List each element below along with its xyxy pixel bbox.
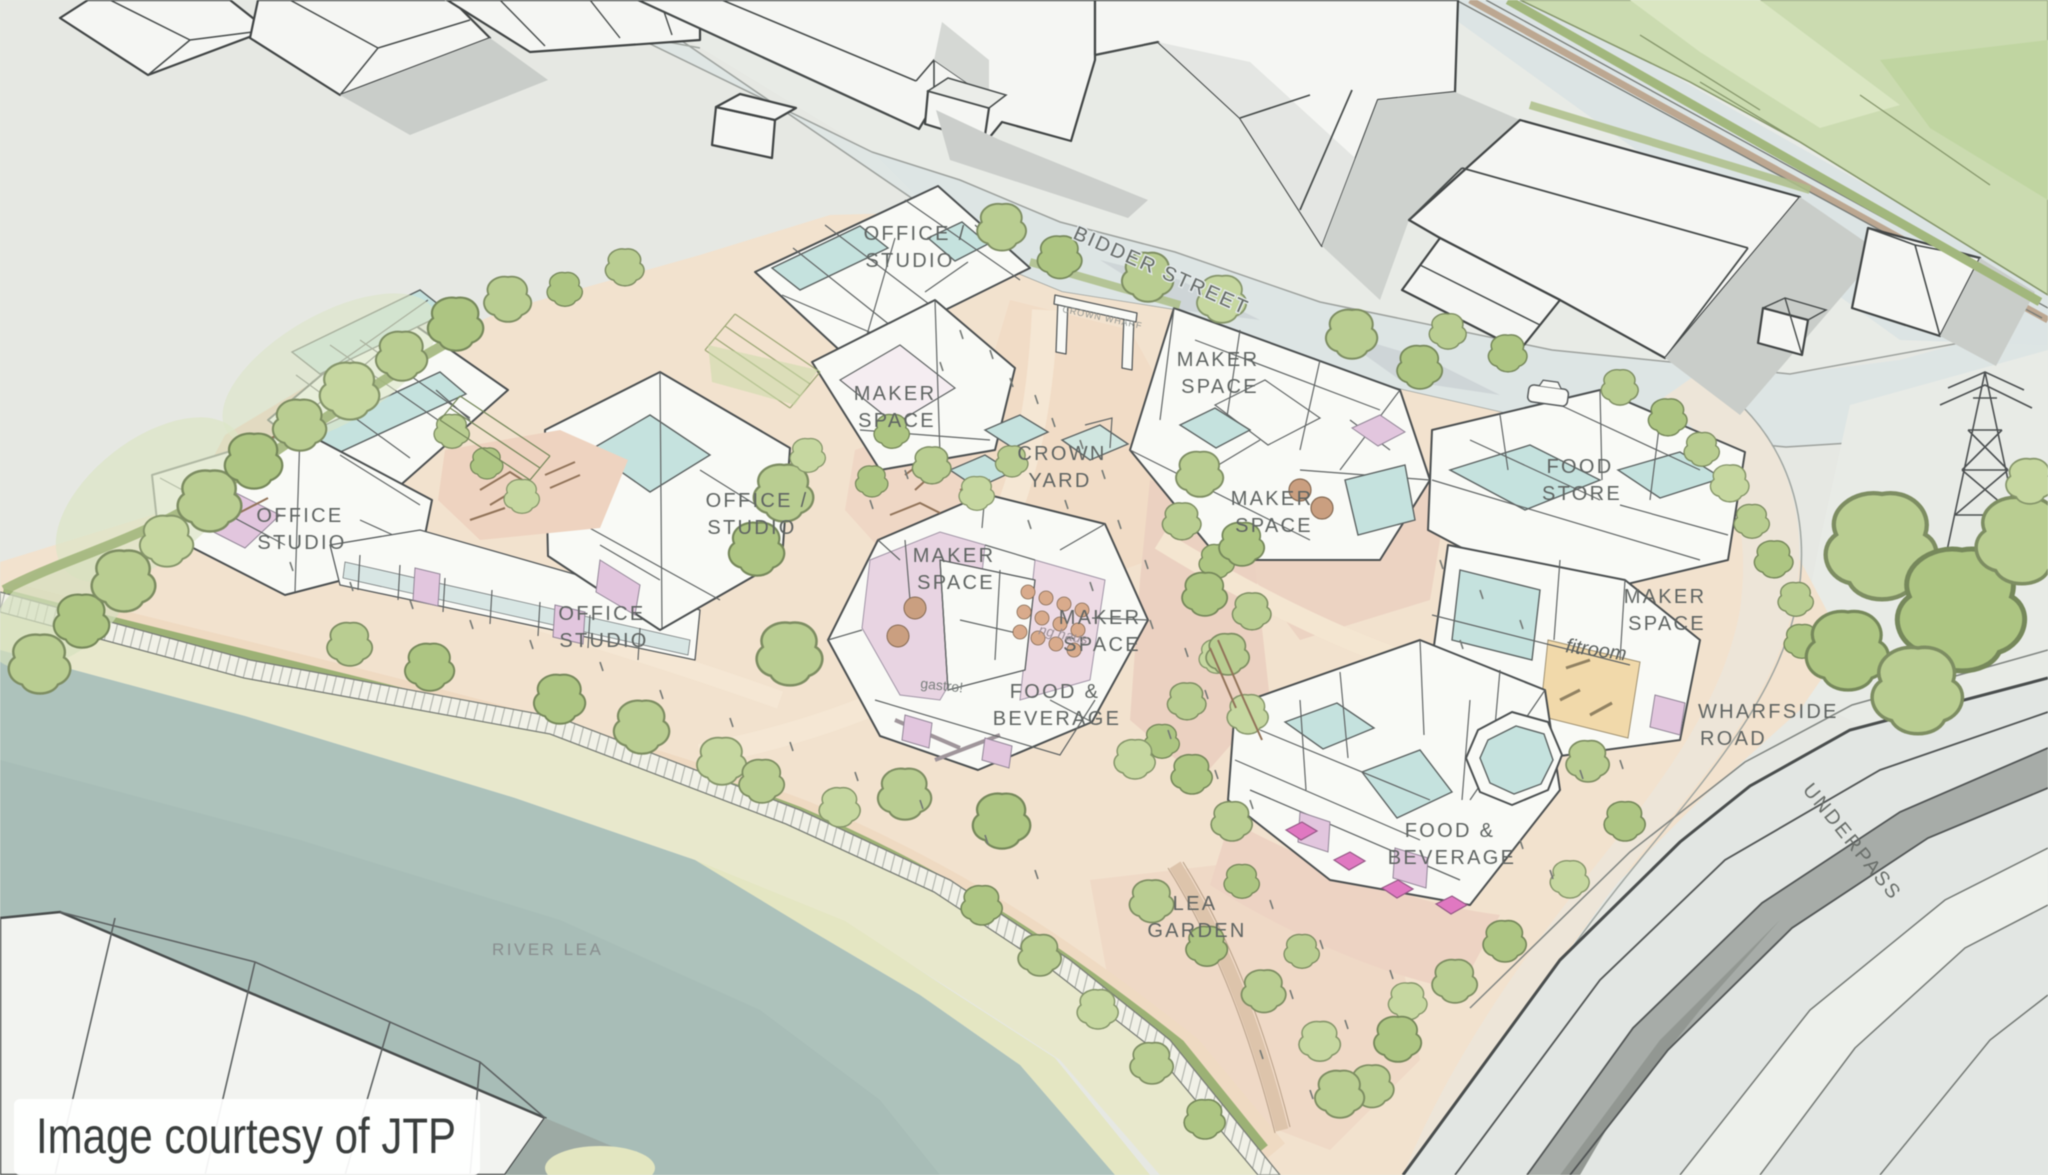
- svg-text:YARD: YARD: [1028, 470, 1091, 492]
- svg-text:FOOD: FOOD: [1547, 456, 1614, 478]
- svg-text:MAKER: MAKER: [1177, 349, 1260, 371]
- svg-text:SPACE: SPACE: [858, 410, 936, 432]
- svg-text:SPACE: SPACE: [1181, 376, 1259, 398]
- svg-text:STUDIO: STUDIO: [559, 630, 648, 652]
- svg-text:BEVERAGE: BEVERAGE: [1388, 847, 1516, 869]
- svg-text:MAKER: MAKER: [1624, 586, 1707, 608]
- svg-text:STUDIO: STUDIO: [257, 532, 346, 554]
- svg-text:SPACE: SPACE: [1628, 613, 1706, 635]
- svg-text:FOOD &: FOOD &: [1010, 681, 1100, 703]
- svg-text:CROWN: CROWN: [1017, 443, 1106, 465]
- svg-text:OFFICE /: OFFICE /: [864, 223, 967, 245]
- svg-text:STORE: STORE: [1542, 483, 1622, 505]
- svg-text:OFFICE: OFFICE: [256, 505, 343, 527]
- svg-text:SPACE: SPACE: [917, 572, 995, 594]
- svg-text:MAKER: MAKER: [913, 545, 996, 567]
- svg-text:Image courtesy of JTP: Image courtesy of JTP: [36, 1108, 456, 1164]
- svg-text:SPACE: SPACE: [1235, 515, 1313, 537]
- svg-text:FOOD &: FOOD &: [1405, 820, 1495, 842]
- svg-text:STUDIO: STUDIO: [707, 517, 796, 539]
- svg-text:MAKER: MAKER: [854, 383, 937, 405]
- svg-text:ROAD: ROAD: [1700, 728, 1767, 750]
- svg-text:LEA: LEA: [1173, 893, 1218, 915]
- svg-text:OFFICE /: OFFICE /: [706, 490, 809, 512]
- svg-text:MAKER: MAKER: [1059, 607, 1142, 629]
- svg-text:WHARFSIDE: WHARFSIDE: [1698, 701, 1839, 723]
- svg-text:BEVERAGE: BEVERAGE: [993, 708, 1121, 730]
- svg-text:STUDIO: STUDIO: [865, 250, 954, 272]
- svg-text:GARDEN: GARDEN: [1147, 920, 1246, 942]
- svg-text:OFFICE: OFFICE: [558, 603, 645, 625]
- svg-text:MAKER: MAKER: [1231, 488, 1314, 510]
